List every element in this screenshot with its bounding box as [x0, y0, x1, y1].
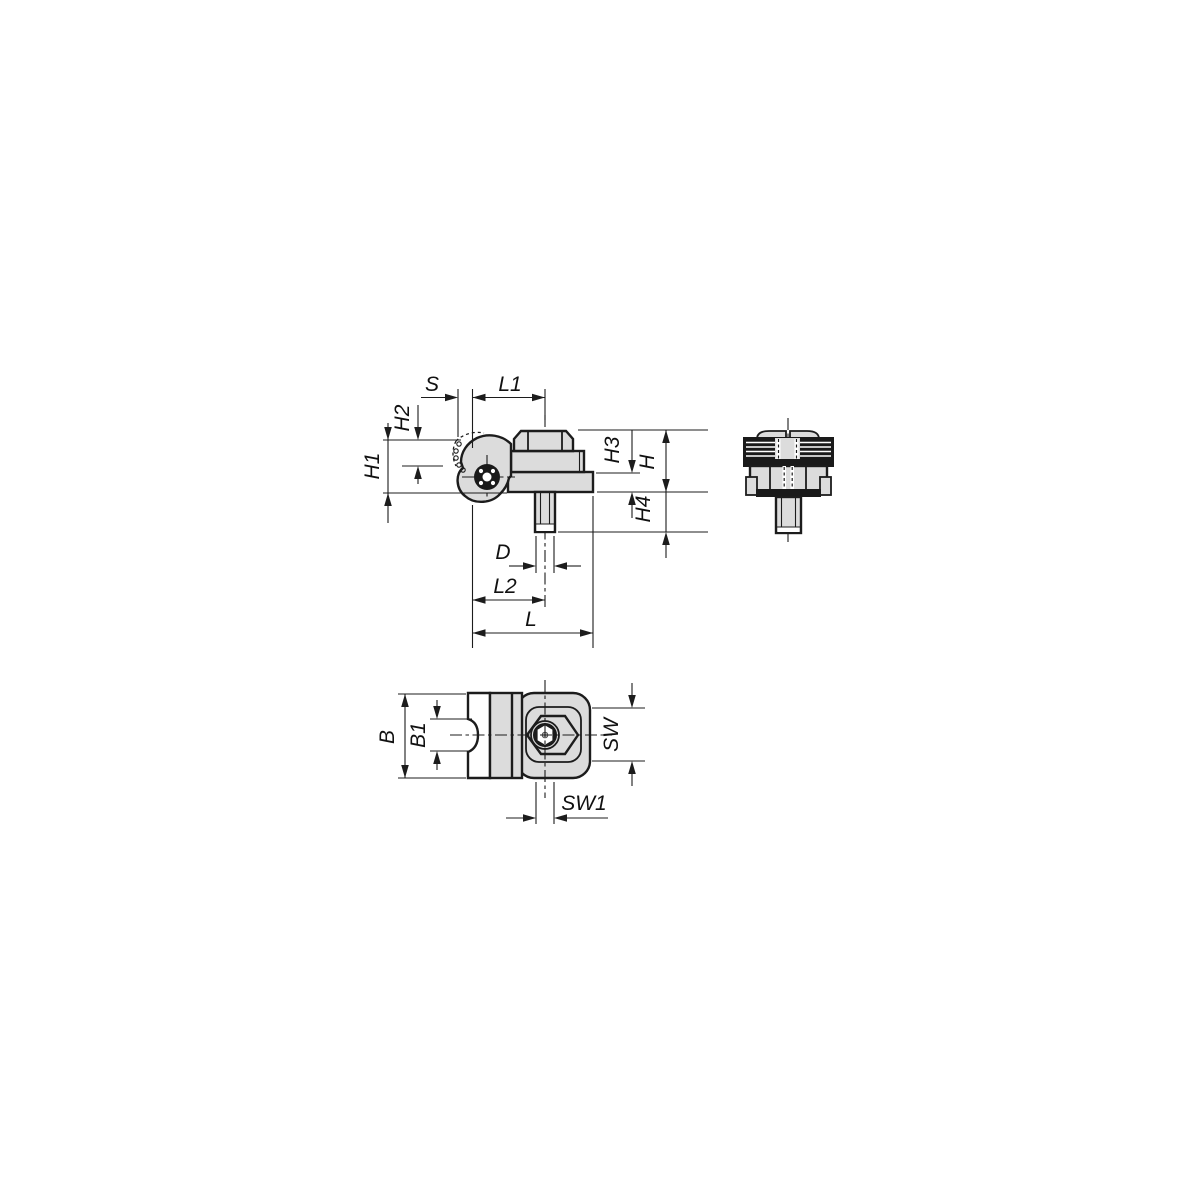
- top-view: [450, 680, 612, 798]
- arrowhead: [414, 427, 422, 440]
- dimension-l2: L2: [473, 575, 546, 604]
- serration-tooth: [454, 456, 458, 460]
- arrowhead: [662, 430, 670, 443]
- technical-drawing-page: S L1 H2 H1 H3: [0, 0, 1200, 1200]
- front-body: [746, 466, 831, 497]
- arrowhead: [554, 562, 567, 570]
- arrowhead: [473, 629, 486, 637]
- arrowhead: [384, 427, 392, 440]
- arrowhead: [628, 460, 636, 473]
- dimension-d: D: [495, 541, 581, 570]
- dimension-h2: H2: [391, 404, 422, 484]
- dimension-h3: H3: [601, 430, 636, 473]
- stud-chamfer: [537, 525, 554, 532]
- dimension-s: S: [421, 373, 458, 401]
- serration-tooth: [457, 463, 461, 467]
- dimension-h4: H4: [628, 492, 670, 558]
- arrowhead: [401, 765, 409, 778]
- arrowhead: [473, 596, 486, 604]
- stud-chamfer: [778, 527, 800, 532]
- threaded-stud: [535, 492, 555, 532]
- body-bottom-band: [756, 489, 821, 497]
- dim-label-h4: H4: [632, 496, 655, 523]
- arrowhead: [384, 493, 392, 506]
- dim-label-h3: H3: [601, 436, 624, 463]
- side-view: [453, 389, 593, 607]
- dim-label-h1: H1: [361, 453, 384, 480]
- pivot-dot: [479, 469, 483, 473]
- arrowhead: [523, 562, 536, 570]
- dimension-sw1: SW1: [506, 792, 608, 822]
- collar: [511, 451, 584, 472]
- dim-label-b: B: [376, 730, 399, 744]
- technical-drawing-canvas: S L1 H2 H1 H3: [0, 0, 1200, 1200]
- corner-hook: [820, 477, 831, 495]
- dim-label-h2: H2: [391, 404, 414, 431]
- front-stud: [776, 497, 801, 533]
- knurled-head: [744, 438, 833, 466]
- body-block: [750, 466, 827, 492]
- dimension-l: L: [473, 608, 594, 637]
- arrowhead: [532, 596, 545, 604]
- arrowhead: [414, 466, 422, 479]
- dim-label-s: S: [425, 373, 439, 396]
- arrowhead: [628, 761, 636, 774]
- corner-hook: [746, 477, 757, 495]
- pivot-center-hole: [483, 473, 492, 482]
- arrowhead: [523, 814, 536, 822]
- arrowhead: [401, 694, 409, 707]
- dimension-h1: H1: [361, 423, 392, 523]
- arrowhead: [433, 751, 441, 764]
- dim-label-b1: B1: [407, 722, 430, 748]
- dim-label-l: L: [525, 608, 537, 631]
- arrowhead: [662, 479, 670, 492]
- arrowhead: [433, 706, 441, 719]
- dim-label-l1: L1: [498, 373, 521, 396]
- pivot-dot: [491, 469, 495, 473]
- hex-nut: [514, 431, 573, 451]
- arrowhead: [628, 695, 636, 708]
- arrowhead: [662, 532, 670, 545]
- dimension-sw: SW: [600, 683, 636, 786]
- arrowhead: [445, 394, 458, 402]
- arrowhead: [473, 394, 486, 402]
- pivot-dot: [479, 481, 483, 485]
- dim-label-l2: L2: [493, 575, 517, 598]
- dim-label-d: D: [495, 541, 510, 564]
- dim-label-sw: SW: [600, 716, 623, 752]
- dimension-l1: L1: [473, 373, 546, 401]
- arrowhead: [580, 629, 593, 637]
- arrowhead: [532, 394, 545, 402]
- front-view: [744, 418, 833, 542]
- cam-lever: [453, 432, 515, 502]
- dimension-b: B: [376, 694, 409, 778]
- dim-label-h: H: [636, 454, 659, 470]
- dim-label-sw1: SW1: [561, 792, 607, 815]
- serration-tooth: [457, 442, 461, 446]
- serration-tooth: [454, 449, 458, 453]
- dimension-b1: B1: [407, 700, 441, 770]
- base-plate: [508, 472, 593, 492]
- pivot-dot: [491, 481, 495, 485]
- arrowhead: [554, 814, 567, 822]
